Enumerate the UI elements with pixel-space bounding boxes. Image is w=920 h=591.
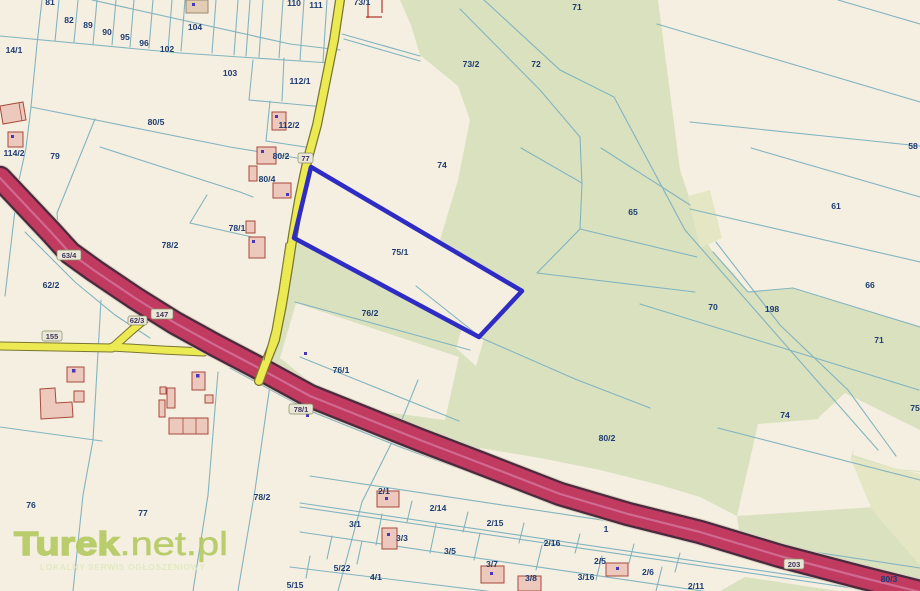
svg-text:72: 72 xyxy=(531,59,541,69)
svg-text:2/15: 2/15 xyxy=(487,518,504,528)
svg-text:76: 76 xyxy=(26,500,36,510)
svg-text:Turek.net.pl: Turek.net.pl xyxy=(14,525,228,562)
svg-text:74: 74 xyxy=(780,410,790,420)
svg-text:76/1: 76/1 xyxy=(333,365,350,375)
svg-text:79: 79 xyxy=(50,151,60,161)
svg-text:4/1: 4/1 xyxy=(370,572,382,582)
svg-text:3/16: 3/16 xyxy=(578,572,595,582)
svg-text:2/14: 2/14 xyxy=(430,503,447,513)
svg-text:80/2: 80/2 xyxy=(599,433,616,443)
svg-text:62/2: 62/2 xyxy=(43,280,60,290)
svg-text:5/22: 5/22 xyxy=(334,563,351,573)
svg-text:155: 155 xyxy=(46,332,59,341)
svg-text:3/8: 3/8 xyxy=(525,573,537,583)
svg-text:3/7: 3/7 xyxy=(486,559,498,569)
svg-text:110: 110 xyxy=(287,0,301,8)
svg-text:5/15: 5/15 xyxy=(287,580,304,590)
svg-text:63/4: 63/4 xyxy=(62,251,77,260)
svg-text:3/3: 3/3 xyxy=(396,533,408,543)
svg-text:78/1: 78/1 xyxy=(294,405,309,414)
svg-text:89: 89 xyxy=(83,20,93,30)
svg-text:80/4: 80/4 xyxy=(259,174,276,184)
svg-text:81: 81 xyxy=(45,0,55,7)
svg-text:102: 102 xyxy=(160,44,175,54)
svg-text:77: 77 xyxy=(138,508,148,518)
svg-text:77: 77 xyxy=(301,154,309,163)
svg-text:114/2: 114/2 xyxy=(3,148,24,158)
svg-text:LOKALNY SERWIS OGŁOSZENIOWY: LOKALNY SERWIS OGŁOSZENIOWY xyxy=(40,562,206,572)
svg-text:73/2: 73/2 xyxy=(463,59,480,69)
svg-text:1: 1 xyxy=(604,524,609,534)
svg-text:2/1: 2/1 xyxy=(378,486,390,496)
svg-text:2/16: 2/16 xyxy=(544,538,561,548)
svg-text:14/1: 14/1 xyxy=(6,45,23,55)
svg-text:58: 58 xyxy=(908,141,918,151)
svg-text:103: 103 xyxy=(223,68,238,78)
svg-text:78/2: 78/2 xyxy=(162,240,179,250)
svg-text:82: 82 xyxy=(64,15,74,25)
svg-text:3/5: 3/5 xyxy=(444,546,456,556)
svg-text:2/5: 2/5 xyxy=(594,556,606,566)
svg-text:111: 111 xyxy=(309,0,323,10)
svg-text:112/1: 112/1 xyxy=(289,76,310,86)
svg-text:95: 95 xyxy=(120,32,130,42)
svg-text:80/3: 80/3 xyxy=(881,574,898,584)
svg-text:90: 90 xyxy=(102,27,112,37)
svg-text:71: 71 xyxy=(874,335,884,345)
svg-text:78/2: 78/2 xyxy=(254,492,271,502)
svg-text:2/6: 2/6 xyxy=(642,567,654,577)
svg-text:104: 104 xyxy=(188,22,203,32)
svg-text:2/11: 2/11 xyxy=(688,581,704,591)
svg-text:71: 71 xyxy=(572,2,582,12)
svg-text:70: 70 xyxy=(708,302,718,312)
svg-text:61: 61 xyxy=(831,201,841,211)
svg-text:76/2: 76/2 xyxy=(362,308,379,318)
svg-text:74: 74 xyxy=(437,160,447,170)
svg-text:73/1: 73/1 xyxy=(354,0,371,7)
svg-text:80/2: 80/2 xyxy=(273,151,290,161)
svg-text:62/3: 62/3 xyxy=(130,316,145,325)
svg-text:66: 66 xyxy=(865,280,875,290)
svg-text:112/2: 112/2 xyxy=(278,120,299,130)
svg-text:198: 198 xyxy=(765,304,780,314)
svg-text:65: 65 xyxy=(628,207,638,217)
svg-text:75/1: 75/1 xyxy=(392,247,409,257)
svg-text:147: 147 xyxy=(156,310,169,319)
svg-text:75: 75 xyxy=(910,403,920,413)
svg-text:80/5: 80/5 xyxy=(148,117,165,127)
svg-text:96: 96 xyxy=(139,38,149,48)
svg-text:78/1: 78/1 xyxy=(229,223,246,233)
svg-text:3/1: 3/1 xyxy=(349,519,361,529)
svg-text:203: 203 xyxy=(788,560,801,569)
